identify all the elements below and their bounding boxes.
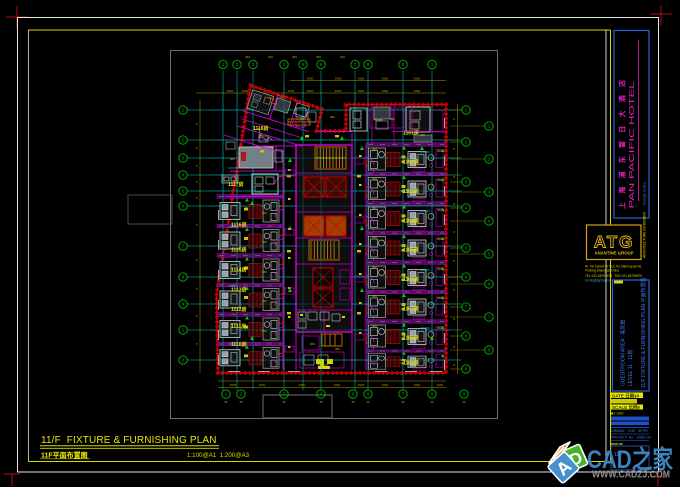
svg-text:360: 360 — [268, 55, 273, 59]
svg-text:1112房: 1112房 — [231, 306, 247, 313]
svg-text:1109房: 1109房 — [403, 360, 419, 367]
svg-text:360: 360 — [316, 55, 321, 59]
svg-text:360: 360 — [372, 294, 377, 298]
svg-text:11/F FIXTURE & FURNISHING PLAN: 11/F FIXTURE & FURNISHING PLAN 平面布置图 — [640, 278, 647, 388]
svg-text:3600: 3600 — [307, 76, 314, 80]
svg-text:3600: 3600 — [414, 76, 421, 80]
svg-text:3600: 3600 — [299, 383, 306, 387]
svg-text:3600: 3600 — [334, 383, 341, 387]
svg-text:3600: 3600 — [259, 383, 266, 387]
svg-text:1115房: 1115房 — [231, 247, 247, 254]
svg-text:360: 360 — [262, 270, 267, 274]
svg-text:3600: 3600 — [230, 383, 237, 387]
svg-text:1107房: 1107房 — [403, 306, 419, 313]
svg-text:360: 360 — [437, 237, 442, 241]
svg-text:3600: 3600 — [358, 383, 365, 387]
svg-text:ANANTINE GROUP: ANANTINE GROUP — [595, 251, 634, 256]
svg-text:360: 360 — [335, 347, 340, 351]
svg-text:E-M atg@atgchina.com: E-M atg@atgchina.com — [585, 279, 611, 283]
svg-text:360: 360 — [262, 211, 267, 215]
svg-text:1111房: 1111房 — [231, 323, 246, 330]
svg-text:360: 360 — [230, 157, 235, 161]
svg-text:360: 360 — [437, 208, 442, 212]
svg-text:1102房: 1102房 — [403, 159, 419, 166]
svg-text:DATE 日期¥¥: DATE 日期¥¥ — [612, 393, 640, 400]
svg-text:360: 360 — [437, 326, 442, 330]
svg-text:3600: 3600 — [358, 76, 365, 80]
svg-text:360: 360 — [372, 265, 377, 269]
svg-text:3600: 3600 — [307, 89, 314, 93]
svg-text:▬▬ ▬: ▬▬ ▬ — [611, 442, 623, 446]
svg-text:3600: 3600 — [335, 76, 342, 80]
svg-text:3600: 3600 — [437, 383, 444, 387]
svg-text:Pudong,Shanghai,China: Pudong,Shanghai,China — [585, 269, 619, 273]
svg-text:360: 360 — [245, 55, 250, 59]
svg-text:36: 36 — [224, 400, 228, 404]
svg-text:TEL 021-68795678 FAX 021-687: TEL 021-68795678 FAX 021-68795679 — [585, 274, 642, 278]
svg-text:360: 360 — [262, 299, 267, 303]
svg-text:1110房: 1110房 — [231, 341, 247, 348]
svg-text:1108房: 1108房 — [403, 335, 419, 342]
svg-text:360: 360 — [292, 55, 297, 59]
svg-text:360: 360 — [437, 149, 442, 153]
svg-text:1105房: 1105房 — [403, 247, 419, 254]
svg-text:1:100@A1 1:200@A3: 1:100@A1 1:200@A3 — [187, 452, 250, 459]
svg-text:360: 360 — [310, 342, 315, 346]
svg-text:360: 360 — [372, 147, 377, 151]
svg-text:360: 360 — [372, 206, 377, 210]
svg-text:36: 36 — [462, 400, 466, 404]
svg-text:360: 360 — [262, 240, 267, 244]
svg-text:3600: 3600 — [414, 89, 421, 93]
svg-text:36: 36 — [239, 400, 243, 404]
svg-text:■1:100: ■1:100 — [611, 411, 624, 416]
svg-text:WWW.CADZJ.COM: WWW.CADZJ.COM — [592, 469, 670, 481]
svg-text:11/F FIXTURE & FURNISHING PLA: 11/F FIXTURE & FURNISHING PLAN — [41, 435, 217, 446]
svg-text:3600: 3600 — [358, 89, 365, 93]
svg-text:1116房: 1116房 — [231, 222, 247, 229]
svg-text:1103房: 1103房 — [403, 188, 419, 195]
svg-text:3600: 3600 — [414, 383, 421, 387]
svg-text:360: 360 — [390, 117, 395, 121]
svg-text:1114房: 1114房 — [231, 267, 247, 274]
svg-text:3600: 3600 — [382, 76, 389, 80]
svg-text:360: 360 — [300, 117, 305, 121]
svg-text:3600: 3600 — [382, 89, 389, 93]
svg-text:360: 360 — [437, 178, 442, 182]
svg-text:ARCHITECTURE INTERIORS: ARCHITECTURE INTERIORS — [643, 211, 647, 258]
svg-text:PAN PACIFIC HOTEL: PAN PACIFIC HOTEL — [629, 81, 636, 208]
svg-text:36: 36 — [366, 400, 370, 404]
svg-text:Tuanjie Odea: Tuanjie Odea — [642, 181, 647, 206]
svg-text:360: 360 — [437, 267, 442, 271]
svg-text:360: 360 — [372, 177, 377, 181]
svg-text:36: 36 — [282, 400, 286, 404]
svg-text:3600: 3600 — [242, 89, 249, 93]
svg-text:360: 360 — [437, 296, 442, 300]
svg-text:1117房: 1117房 — [228, 181, 244, 188]
svg-text:36: 36 — [401, 400, 405, 404]
svg-text:上海浦东冨日大酒店: 上海浦东冨日大酒店 — [618, 80, 627, 209]
svg-text:360: 360 — [340, 55, 345, 59]
svg-text:11F平面布置图: 11F平面布置图 — [41, 450, 88, 459]
svg-text:GUESTROOM AREA : 客房層: GUESTROOM AREA : 客房層 — [620, 320, 627, 386]
svg-text:PROJECT No. 1088-11F: PROJECT No. 1088-11F — [611, 436, 652, 440]
svg-text:1113房: 1113房 — [231, 287, 247, 294]
svg-text:ATG: ATG — [594, 233, 635, 252]
svg-text:DRAWN CHK APPR: DRAWN CHK APPR — [611, 429, 648, 433]
svg-text:360: 360 — [262, 329, 267, 333]
svg-text:1104房: 1104房 — [403, 218, 419, 225]
svg-text:360: 360 — [372, 324, 377, 328]
svg-text:360: 360 — [330, 115, 335, 119]
svg-text:36: 36 — [430, 400, 434, 404]
svg-text:3600: 3600 — [227, 89, 234, 93]
svg-text:360: 360 — [420, 133, 425, 137]
svg-text:3600: 3600 — [382, 383, 389, 387]
svg-text:36: 36 — [319, 400, 323, 404]
svg-text:360: 360 — [258, 133, 263, 137]
svg-text:1118房: 1118房 — [253, 125, 269, 132]
svg-text:36: 36 — [351, 400, 355, 404]
svg-text:LEVEL 11 : 11層: LEVEL 11 : 11層 — [628, 350, 634, 386]
svg-text:3600: 3600 — [288, 89, 295, 93]
svg-text:3600: 3600 — [335, 89, 342, 93]
svg-text:360: 360 — [372, 235, 377, 239]
